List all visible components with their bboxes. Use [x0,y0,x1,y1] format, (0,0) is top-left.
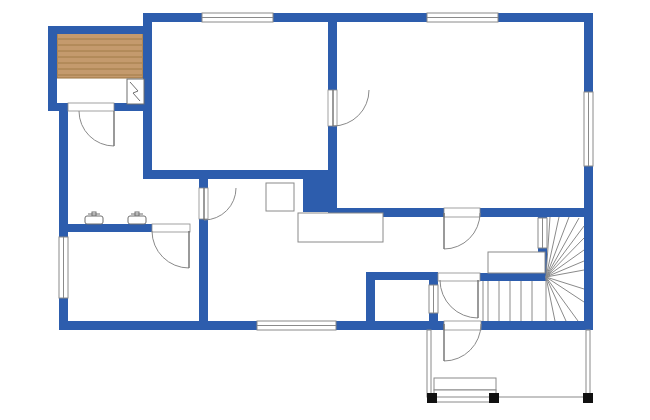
porch-right-rail [586,330,590,396]
sauna-top-wall [48,26,143,34]
kitchen-stove [266,183,294,211]
vestibule-door-opening [438,273,480,281]
washbasin-right-bowl [128,216,146,224]
floor-plan-canvas [0,0,650,420]
small-room-west-wall [366,272,375,330]
floor-plan-drawing [0,0,650,420]
washroom-south-opening [152,224,190,232]
porch-post-right [583,393,593,403]
washbasin-left-bowl [85,216,103,224]
washroom-south-wall [59,224,152,232]
exterior-right-wall [584,13,593,330]
sauna-wood-floor [57,33,143,78]
porch-post-left [427,393,437,403]
bedroom-bottom-wall [143,170,303,179]
vestibule-north-wall [480,273,547,281]
porch-left-rail [427,330,431,397]
porch-step-lower [434,390,496,402]
sauna-door-opening [68,103,114,111]
sauna-left-wall [48,26,57,111]
porch-post-middle [489,393,499,403]
living-entry-opening [444,208,480,217]
small-room-north-wall [366,272,438,280]
kitchen-counter [298,213,383,242]
stair-landing [488,252,545,273]
exterior-door-opening [444,321,481,330]
porch-step-upper [434,378,496,390]
